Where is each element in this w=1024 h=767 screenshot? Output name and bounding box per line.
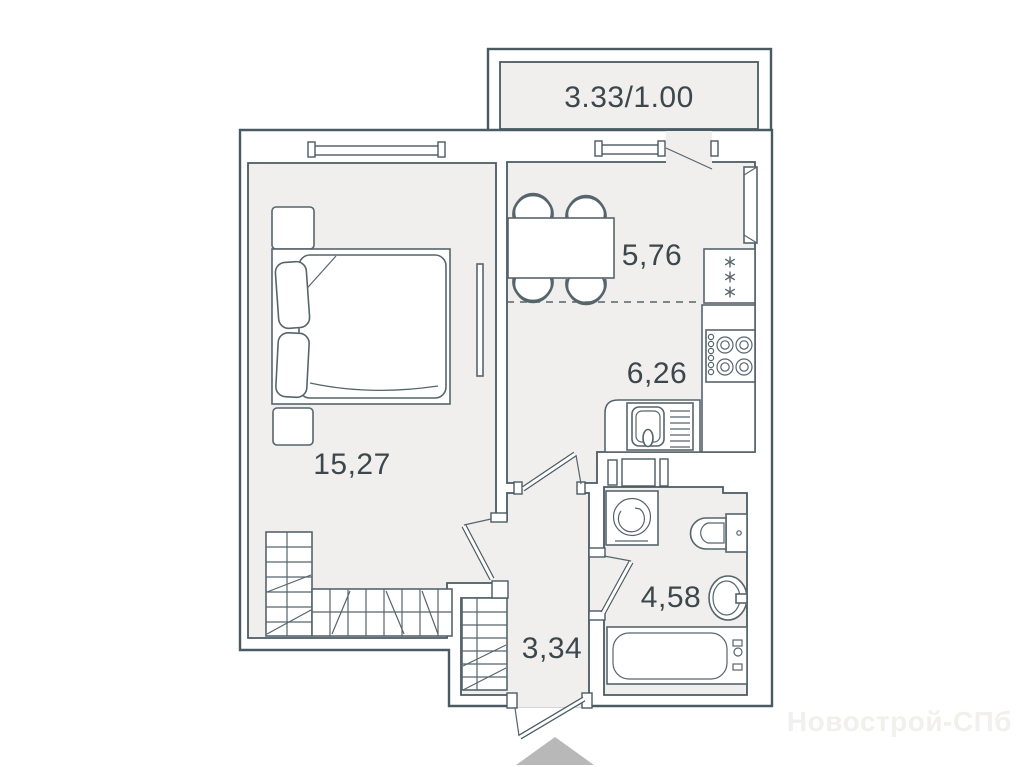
kitchen-sink xyxy=(605,400,700,452)
dining-zone-area-label: 5,76 xyxy=(622,239,682,272)
floor-plan-page: 3.33/1.00 15,27 5,76 6,26 4,58 3,34 Ново… xyxy=(0,0,1024,767)
nightstand xyxy=(272,207,314,249)
pillow xyxy=(275,261,311,329)
washing-machine xyxy=(606,491,658,545)
bedroom-doorway xyxy=(494,521,508,581)
tall-cabinet xyxy=(744,167,757,243)
bathroom-area-label: 4,58 xyxy=(641,581,701,614)
wall-panel xyxy=(477,264,483,376)
bed xyxy=(272,249,450,404)
living-room-area-label: 15,27 xyxy=(313,448,391,481)
floor-plan-svg: 3.33/1.00 15,27 5,76 6,26 4,58 3,34 Ново… xyxy=(0,0,1024,767)
stove xyxy=(706,330,755,382)
nightstand xyxy=(273,408,313,445)
wardrobe xyxy=(266,532,312,636)
fridge xyxy=(704,249,755,303)
kitchen-zone-area-label: 6,26 xyxy=(627,357,687,390)
watermark: Новострой-СПб xyxy=(787,706,1012,737)
bathtub xyxy=(607,627,747,684)
wardrobe xyxy=(312,589,452,636)
pillow xyxy=(275,332,309,398)
balcony-area-label: 3.33/1.00 xyxy=(564,81,694,114)
entry-arrow xyxy=(516,737,594,765)
bathroom-doorway xyxy=(590,556,605,612)
toilet xyxy=(691,514,748,552)
wardrobe xyxy=(462,598,507,690)
wash-basin xyxy=(709,576,747,620)
hallway-area-label: 3,34 xyxy=(522,632,582,665)
